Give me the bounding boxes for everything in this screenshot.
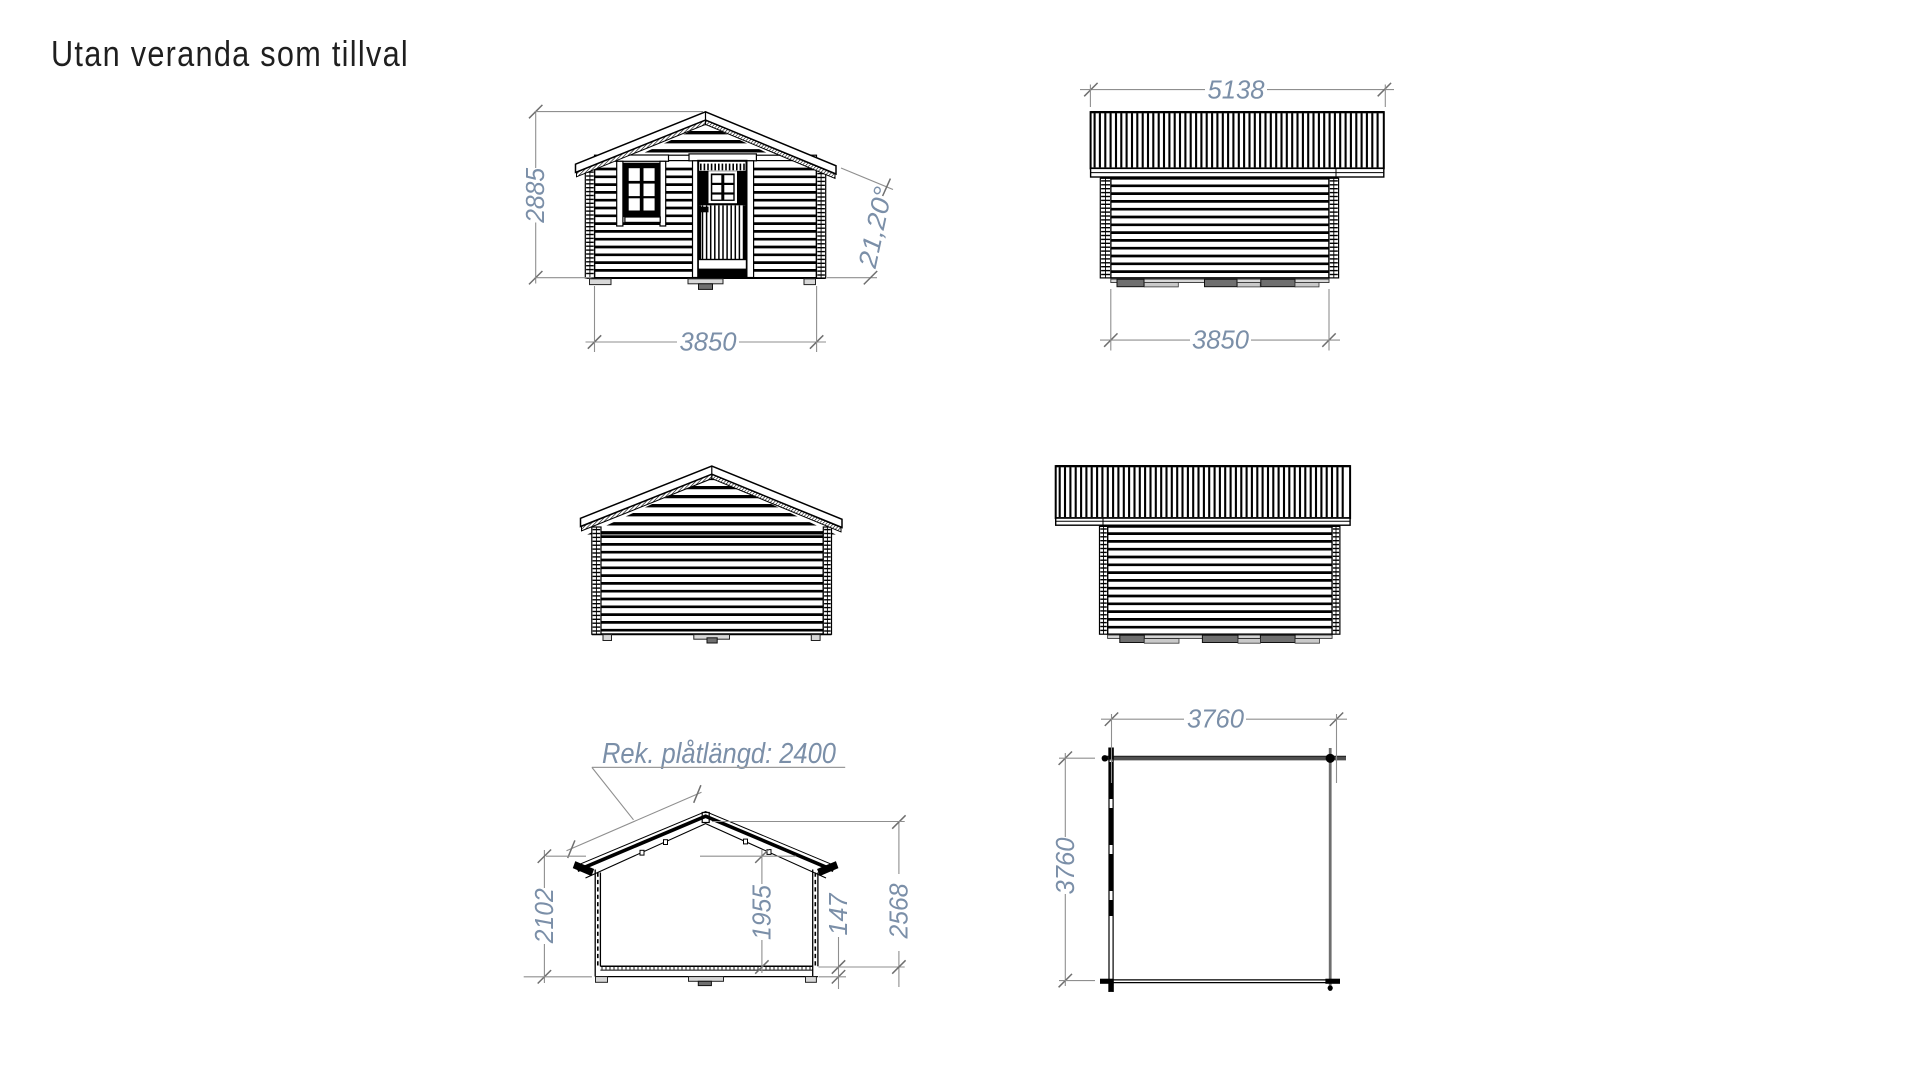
svg-text:3760: 3760 [1187, 703, 1245, 733]
svg-text:3850: 3850 [680, 327, 738, 357]
svg-text:Utan veranda som tillval: Utan veranda som tillval [51, 33, 409, 74]
svg-text:147: 147 [823, 892, 853, 935]
svg-text:3850: 3850 [1192, 325, 1250, 355]
svg-text:3760: 3760 [1050, 837, 1080, 895]
svg-text:21,20°: 21,20° [852, 184, 899, 272]
svg-text:2568: 2568 [883, 883, 913, 939]
svg-text:Rek. plåtlängd: 2400: Rek. plåtlängd: 2400 [602, 738, 836, 770]
svg-text:2885: 2885 [520, 167, 550, 223]
svg-text:1955: 1955 [746, 884, 776, 940]
svg-text:5138: 5138 [1208, 74, 1266, 104]
svg-text:2102: 2102 [529, 888, 559, 944]
